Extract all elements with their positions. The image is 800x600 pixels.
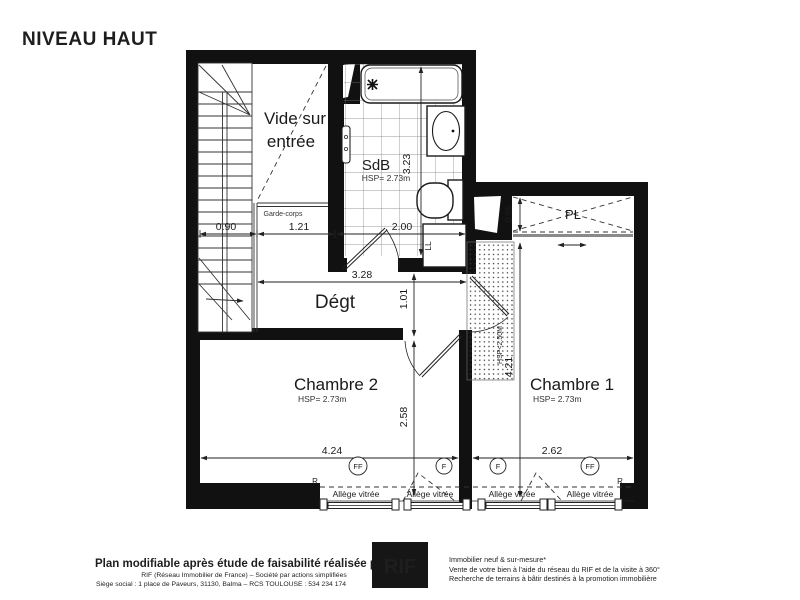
toilet (417, 180, 463, 220)
wall-sdb-bottom-a (328, 258, 347, 272)
radiator-marker-left: R (312, 477, 318, 486)
bedroom2-hsp: HSP= 2.73m (298, 394, 346, 404)
window-symbol-f-right: F (490, 458, 506, 474)
footer-services: Immobilier neuf & sur-mesure* Vente de v… (449, 555, 660, 583)
svg-text:F: F (442, 462, 447, 471)
window-sill-2 (411, 503, 463, 509)
washing-machine: LL (423, 224, 466, 267)
radiator-marker-right: R (617, 477, 623, 486)
towel-radiator (342, 126, 350, 163)
page-title: NIVEAU HAUT (22, 29, 157, 50)
dim-200: 2.00 (392, 221, 413, 233)
rif-logo-text: RIF (384, 556, 416, 578)
footer-service-2: Vente de votre bien à l'aide du réseau d… (449, 565, 660, 574)
closet: PL 0.65 (504, 197, 633, 245)
dim-121: 1.21 (289, 221, 310, 233)
window-symbol-f-left: F (436, 458, 452, 474)
wall-bottom-left (186, 483, 320, 509)
dim-090: 0.90 (216, 221, 237, 233)
bedroom2-label: Chambre 2 (294, 375, 378, 394)
bathroom: LL SdB HSP= 2.73m 3.23 (342, 64, 466, 270)
dim-424: 4.24 (322, 445, 343, 457)
void-over-entry: Vide sur entrée (257, 66, 326, 201)
window-symbol-ff-left: FF (349, 457, 367, 475)
svg-text:FF: FF (353, 462, 363, 471)
window-sill-4 (555, 503, 615, 509)
allege-label-1: Allège vitrée (333, 489, 380, 499)
footer-company-line1: RIF (Réseau Immobilier de France) – Soci… (141, 572, 347, 579)
dim-101: 1.01 (398, 289, 410, 310)
dim-328: 3.28 (352, 269, 373, 281)
landing-label: Dégt (315, 292, 356, 313)
wall-bottom-right (620, 483, 648, 509)
window-sill-1 (328, 503, 392, 509)
landing: 3.28 Dégt 1.01 (258, 269, 466, 336)
footer-company-line2: Siège social : 1 place de Paveurs, 31130… (96, 581, 346, 588)
void-label-line1: Vide sur (264, 109, 326, 128)
footer-service-3: Recherche de terrains à bâtir destinés à… (449, 574, 657, 583)
bedroom1-hsp: HSP= 2.73m (533, 394, 581, 404)
window-sill-3 (486, 503, 540, 509)
dim-065: 0.65 (504, 205, 514, 223)
window-symbol-ff-right: FF (581, 457, 599, 475)
closet-label: PL (565, 207, 581, 222)
faucet-icon (367, 79, 378, 90)
dim-sdb-height: 3.23 (401, 154, 413, 175)
bathtub (361, 65, 462, 103)
washing-machine-label: LL (423, 241, 433, 251)
svg-text:FF: FF (585, 462, 595, 471)
sliding-door-track (513, 234, 633, 237)
washbasin (427, 106, 465, 156)
dim-262: 2.62 (542, 445, 563, 457)
svg-text:F: F (496, 462, 501, 471)
bedroom1-label: Chambre 1 (530, 375, 614, 394)
guardrail-label: Garde-corps (264, 211, 303, 218)
allege-label-2: Allège vitrée (407, 489, 454, 499)
bathroom-label: SdB (362, 157, 390, 174)
allege-label-4: Allège vitrée (567, 489, 614, 499)
allege-label-3: Allège vitrée (489, 489, 536, 499)
footer-service-1: Immobilier neuf & sur-mesure* (449, 555, 546, 564)
bedroom-2: Chambre 2 HSP= 2.73m 2.58 4.24 (201, 341, 458, 495)
dim-258: 2.58 (398, 407, 410, 428)
void-label-line2: entrée (267, 132, 315, 151)
dim-421: 4.21 (503, 357, 515, 378)
footer: Plan modifiable après étude de faisabili… (95, 542, 660, 588)
rif-logo: RIF (372, 542, 428, 588)
staircase (198, 63, 252, 332)
facade: FF F F FF R R Allège vitrée Allège vitré… (312, 457, 634, 510)
floor-plan-canvas: NIVEAU HAUT (0, 0, 800, 600)
wall-right (634, 196, 648, 509)
wall-top (186, 50, 476, 64)
